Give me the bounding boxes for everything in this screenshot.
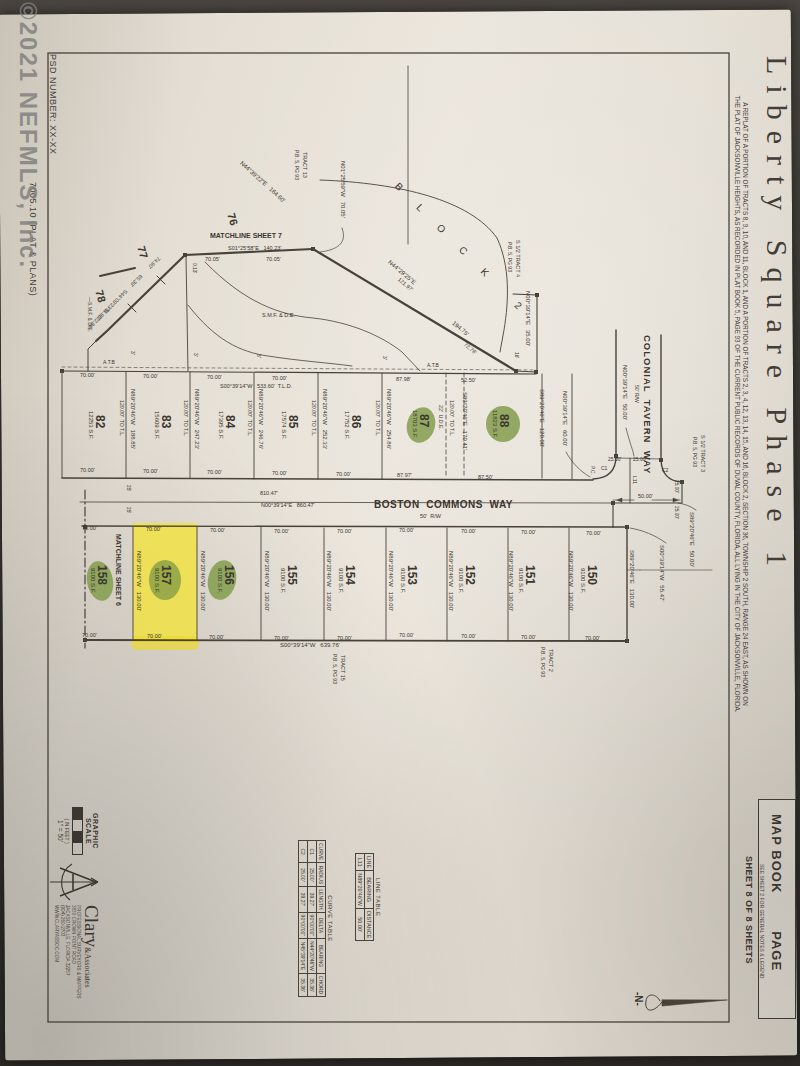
bearing-label: N00°39'14"E 50.00' bbox=[622, 365, 628, 420]
dim-label: 70.00' bbox=[143, 374, 158, 380]
bearing-label: N89°20'46"W 188.85' bbox=[130, 389, 136, 449]
north-arrow-label: -N- bbox=[633, 992, 644, 1006]
surveyor-name: Clary bbox=[81, 905, 102, 947]
dim-label: 16' bbox=[514, 352, 519, 358]
dim-label: 70.00' bbox=[82, 526, 97, 532]
dim-label: 50.00' bbox=[638, 494, 653, 500]
lot-area: 17395 S.F. bbox=[218, 411, 224, 440]
lot-area: 18703 S.F. bbox=[412, 410, 418, 439]
dim-label: 120.00' TO T.L. bbox=[183, 400, 188, 436]
bearing-label: N89°20'46"W 246.76' bbox=[258, 389, 264, 449]
bearing-label: N89°20'46"W 130.00' bbox=[136, 551, 142, 611]
surveyor-phone: (904) 260-2703 bbox=[59, 905, 64, 999]
dim-label: 70.00' bbox=[209, 635, 224, 641]
tract-label: P.B. 5, PG 93 bbox=[507, 242, 512, 272]
table-header: DELTA bbox=[317, 912, 326, 938]
scale-bar bbox=[72, 807, 83, 855]
table-header: DISTANCE bbox=[365, 908, 374, 940]
bearing-label: N89°20'46"W 130.00' bbox=[264, 551, 270, 611]
dim-label: 70.00' bbox=[521, 530, 536, 536]
lot-number: 151 bbox=[523, 565, 536, 585]
dim-label: 70.00' bbox=[272, 471, 287, 477]
easement-label: 22' U.D.E. bbox=[438, 405, 443, 430]
tract-label: TRACT 15 bbox=[339, 655, 345, 681]
dim-label: 120.00' TO T.L. bbox=[247, 400, 252, 436]
lot-area: 9100 S.F. bbox=[580, 568, 586, 593]
dim-label: 70.00' bbox=[80, 373, 95, 379]
dim-label: 70.00' bbox=[207, 470, 222, 476]
table-header: BEARING bbox=[365, 871, 374, 909]
dim-label: 70.00' bbox=[272, 376, 287, 382]
table-cell: 50.00' bbox=[356, 908, 365, 940]
dim-label: 87.50' bbox=[478, 475, 493, 481]
lot-area: 15609 S.F. bbox=[154, 411, 160, 440]
lot-number: 153 bbox=[405, 565, 418, 585]
dim-label: 25.00' bbox=[674, 480, 679, 493]
lot-area: 17574 S.F. bbox=[281, 411, 287, 440]
bearing-label: N89°20'46"W 130.00' bbox=[568, 551, 574, 611]
table-cell: 90°00'00" bbox=[308, 912, 317, 938]
bearing-label: S01°25'58"E 140.23' bbox=[228, 246, 281, 252]
bearing-label: N89°20'46"W 252.33' bbox=[322, 389, 328, 449]
lot-area: 11823 S.F. bbox=[492, 410, 498, 438]
bearing-label: N89°20'46"W 247.23' bbox=[194, 389, 200, 449]
dim-label: 3' bbox=[193, 353, 198, 357]
lot-number: 154 bbox=[343, 565, 356, 585]
tract-label: P.B. 5, PG 93 bbox=[332, 654, 337, 684]
dim-label: 70.00' bbox=[461, 529, 476, 535]
dim-label: 70.00' bbox=[586, 531, 601, 537]
lot-area: 9100 S.F. bbox=[154, 568, 160, 593]
rw-label: 50' R/W bbox=[634, 385, 639, 403]
map-book-label: MAP BOOK bbox=[770, 814, 785, 893]
lot-area: 9100 S.F. bbox=[280, 568, 286, 593]
surveyor-logo-block: Clary&Associates PROFESSIONAL SURVEYORS … bbox=[48, 862, 100, 999]
dim-label: 70.05' bbox=[205, 257, 220, 263]
line-label: L11 bbox=[632, 476, 637, 484]
sheet-note: SEE SHEET 2 FOR GENERAL NOTES & LEGEND bbox=[759, 864, 765, 978]
table-cell: L11 bbox=[356, 854, 365, 871]
dim-label: 70.00' bbox=[146, 527, 161, 533]
table-header: BEARING bbox=[317, 939, 326, 974]
subtitle-line-1: A REPLAT OF A PORTION OF TRACTS 8, 9, 10… bbox=[741, 54, 749, 754]
table-cell: N44°20'46"W bbox=[308, 939, 317, 974]
dim-label: 70.00' bbox=[399, 633, 414, 639]
curve-label: C1 bbox=[601, 466, 607, 471]
lot-area: 9100 S.F. bbox=[400, 568, 406, 593]
table-cell: 90°00'00" bbox=[299, 912, 308, 938]
surveyor-name-suffix: &Associates bbox=[83, 947, 92, 987]
lot-area: 9100 S.F. bbox=[90, 568, 96, 593]
lot-number: 84 bbox=[223, 415, 236, 428]
table-header: RADIUS bbox=[317, 863, 326, 887]
bearing-label: S00°39'14"W 639.76' bbox=[280, 642, 340, 648]
dim-label: 120.00' TO T.L. bbox=[375, 400, 380, 436]
dim-label: 25' bbox=[126, 485, 131, 491]
surveyor-address-1: 3830 CROWN POINT ROAD bbox=[70, 905, 75, 999]
dim-label: 0.13' bbox=[192, 263, 197, 273]
curve-label: C2 bbox=[662, 468, 668, 473]
matchline-6-label: MATCHLINE SHEET 6 bbox=[115, 534, 122, 606]
north-arrow bbox=[646, 995, 727, 1010]
table-header: LINE bbox=[365, 854, 374, 871]
table-header: LENGTH bbox=[317, 887, 326, 912]
table-cell: 35.36' bbox=[308, 973, 317, 996]
dim-label: 52.50' bbox=[461, 378, 476, 384]
graphic-scale-label: GRAPHIC SCALE bbox=[85, 804, 99, 858]
lot-area: 9100 S.F. bbox=[217, 568, 223, 593]
tract-label: TRACT 13 bbox=[301, 152, 307, 178]
bearing-label: N89°20'46"W 130.00' bbox=[326, 551, 332, 611]
rw-label: 50' R/W bbox=[420, 514, 441, 520]
dim-label: 70.00' bbox=[399, 528, 414, 534]
street-name-colonial-tavern: COLONIAL TAVERN WAY bbox=[642, 335, 652, 474]
lot-number: 86 bbox=[349, 415, 362, 428]
psd-number: PSD NUMBER: XX-XX bbox=[48, 54, 58, 155]
bearing-label: N00°39'14"E 860.47' bbox=[261, 503, 315, 509]
bearing-label: S00°39'14"W 55.47' bbox=[659, 545, 665, 602]
dim-label: 70.00' bbox=[337, 636, 352, 642]
easement-label: —S.M.F. & D.E. bbox=[87, 297, 92, 332]
dim-label: 25.00' bbox=[674, 506, 679, 519]
lot-number: 157 bbox=[159, 565, 172, 585]
mls-watermark: ©2021 NEFMLS, Inc. bbox=[14, 2, 42, 269]
easement-label: S.M.F. & D.E. bbox=[262, 313, 295, 319]
table-title: LINE TABLE bbox=[375, 853, 381, 941]
sheet-count-label: SHEET 8 OF 8 SHEETS bbox=[744, 856, 754, 964]
dim-label: 70.00' bbox=[274, 636, 289, 642]
curve-table: CURVE TABLECURVERADIUSLENGTHDELTABEARING… bbox=[298, 840, 333, 997]
dim-label: 70.00' bbox=[521, 635, 536, 641]
surveyor-tagline: PROFESSIONAL SURVEYORS & MAPPERS bbox=[76, 905, 81, 999]
dim-label: 70.00' bbox=[147, 634, 162, 640]
lot-area: 9100 S.F. bbox=[338, 568, 344, 593]
dim-label: 87.97' bbox=[397, 473, 412, 479]
bearing-label: N89°20'46"W 130.00' bbox=[200, 551, 206, 611]
table-cell: 35.36' bbox=[299, 973, 308, 996]
lot-number: 88 bbox=[497, 414, 510, 427]
bearing-label: N89°20'46"W 130.00' bbox=[388, 551, 394, 611]
dim-label: 25' bbox=[126, 507, 131, 513]
dim-label: 87.98' bbox=[396, 377, 411, 383]
dim-label: 120.00' TO T.L. bbox=[119, 400, 124, 436]
surveyor-website: WWW.CLARYASSOC.COM bbox=[54, 905, 59, 999]
street-name-boston-commons: BOSTON COMMONS WAY bbox=[374, 500, 513, 511]
dim-label: 25.00' bbox=[608, 457, 621, 462]
dim-label: 70.00' bbox=[336, 472, 351, 478]
lot-number: 158 bbox=[95, 565, 108, 585]
photo-of-plat: MATCHLINE SHEET 7S01°25'58"E 140.23'70.0… bbox=[0, 0, 800, 1066]
bearing-label: N89°20'46"W 130.00' bbox=[448, 551, 454, 611]
tract-label: P.B. 5, PG 93 bbox=[540, 647, 545, 677]
lot-number: 155 bbox=[285, 565, 298, 585]
pc-label: P.C. bbox=[590, 466, 595, 475]
page-label: PAGE bbox=[770, 931, 785, 971]
bearing-label: S89°20'46"E 170.41' bbox=[462, 392, 468, 450]
tract-label: P.B. 5, PG 93 bbox=[294, 150, 299, 180]
dim-label: 70.00' bbox=[585, 636, 600, 642]
atb-label: A.T.B bbox=[427, 363, 439, 368]
dim-label: 70.00' bbox=[274, 529, 289, 535]
table-cell: N45°39'14"E bbox=[299, 939, 308, 974]
scale-units-label: ( IN FEET ) bbox=[64, 804, 70, 858]
graphic-scale: GRAPHIC SCALE ( IN FEET ) 1" = 50' bbox=[57, 804, 99, 858]
lot-area: 9100 S.F. bbox=[458, 568, 464, 593]
lot-number: 156 bbox=[222, 565, 235, 585]
dim-label: 70.00' bbox=[461, 634, 476, 640]
matchline-7-label: MATCHLINE SHEET 7 bbox=[210, 232, 282, 239]
atb-label: A.T.B bbox=[103, 360, 115, 365]
table-cell: 39.27' bbox=[308, 887, 317, 912]
lot-area: 12253 S.F. bbox=[88, 411, 94, 440]
lot-number: 85 bbox=[286, 415, 299, 428]
table-cell: 39.27' bbox=[299, 887, 308, 912]
dim-label: 70.00' bbox=[143, 469, 158, 475]
table-cell: C2 bbox=[299, 841, 308, 863]
scale-ratio-label: 1" = 50' bbox=[57, 804, 64, 858]
table-title: CURVE TABLE bbox=[327, 840, 333, 997]
dim-label: 70.00' bbox=[210, 528, 225, 534]
bearing-label: S89°20'46"E 50.00' bbox=[689, 512, 695, 567]
line-table: LINE TABLELINEBEARINGDISTANCEL11N89°20'4… bbox=[355, 853, 381, 941]
table-cell: C1 bbox=[308, 841, 317, 863]
dim-label: 120.00' TO T.L. bbox=[311, 400, 316, 436]
tract-label: P.B. 5, PG 93 bbox=[692, 437, 697, 467]
tract-label: TRACT 2 bbox=[547, 649, 553, 672]
tract-label: S 1/2 TRACT 4 bbox=[514, 240, 520, 277]
lot-number: 152 bbox=[463, 565, 476, 585]
clary-compass-logo-icon bbox=[48, 862, 100, 902]
plat-title: Liberty Square Phase 1 bbox=[760, 56, 794, 748]
dim-label: 810.47' bbox=[260, 491, 278, 497]
dim-label: 70.00' bbox=[80, 468, 95, 474]
lot-number: 83 bbox=[159, 415, 172, 428]
tract-label: S 1/2 TRACT 3 bbox=[699, 435, 705, 472]
bearing-label: N01°25'59"W 70.05' bbox=[340, 161, 346, 218]
bearing-label: S00°39'14"W 533.60' T.L.D. bbox=[220, 384, 292, 390]
lot-number: 150 bbox=[585, 565, 598, 585]
bearing-label: S89°20'46"E 120.00' bbox=[539, 389, 545, 447]
bearing-label: N89°20'46"W 254.86' bbox=[386, 389, 392, 449]
dim-label: 70.00' bbox=[207, 375, 222, 381]
dim-label: 3' bbox=[130, 351, 135, 355]
lot-number: 82 bbox=[93, 415, 106, 428]
dim-label: 3' bbox=[256, 354, 261, 358]
dim-label: 3' bbox=[382, 356, 387, 360]
dim-label: 70.00' bbox=[337, 529, 352, 535]
dim-label: 120.00' TO T.L. bbox=[449, 400, 454, 436]
plat-subtitle: A REPLAT OF A PORTION OF TRACTS 8, 9, 10… bbox=[733, 54, 749, 754]
bearing-label: N00°39'14"E 35.00' bbox=[525, 291, 531, 346]
lot-area: 9100 S.F. bbox=[518, 568, 524, 593]
lot-number: 87 bbox=[417, 414, 430, 427]
table-cell: 25.00' bbox=[299, 863, 308, 887]
dim-label: 70.00' bbox=[82, 633, 97, 639]
dim-label: 70.05' bbox=[266, 257, 281, 263]
lot-area: 17752 S.F. bbox=[344, 411, 350, 440]
surveyor-address-2: JACKSONVILLE, FLORIDA 32257 bbox=[65, 905, 70, 999]
table-cell: 25.00' bbox=[308, 863, 317, 887]
bearing-label: S89°20'46"E 130.00' bbox=[629, 550, 635, 608]
table-header: CHORD bbox=[317, 973, 326, 996]
subtitle-line-2: THE PLAT OF JACKSONVILLE HEIGHTS, AS REC… bbox=[733, 54, 741, 754]
bearing-label: N89°20'46"W 130.00' bbox=[508, 551, 514, 611]
table-cell: N89°20'46"W bbox=[356, 871, 365, 909]
bearing-label: N00°39'14"E 60.00' bbox=[562, 391, 568, 446]
table-header: CURVE bbox=[317, 841, 326, 863]
